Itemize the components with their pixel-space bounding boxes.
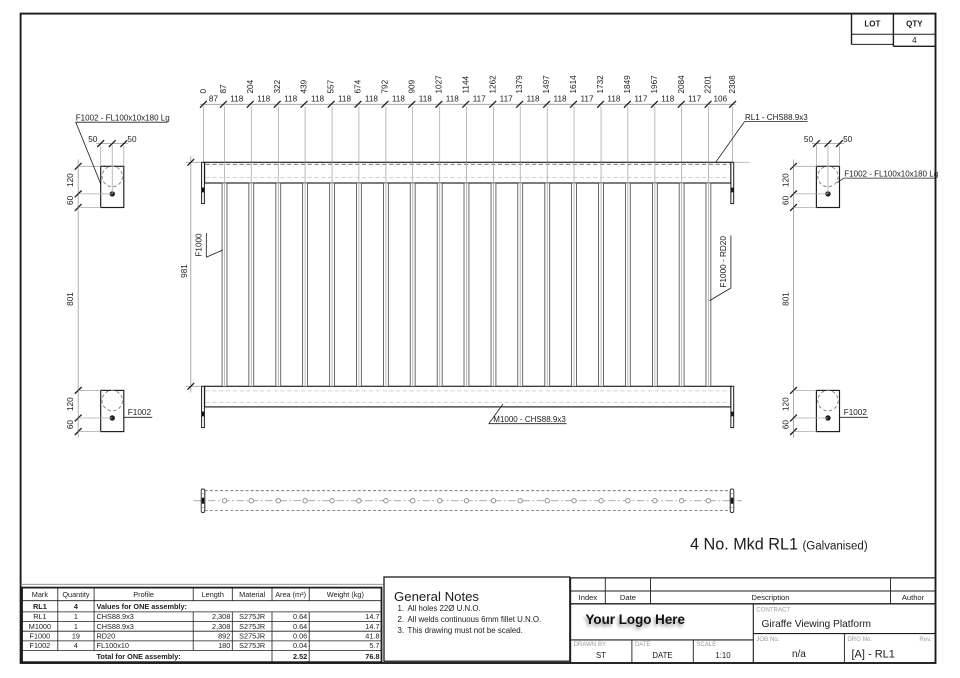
svg-text:Total for ONE assembly:: Total for ONE assembly: <box>97 652 181 661</box>
svg-text:50: 50 <box>804 135 814 144</box>
svg-text:50: 50 <box>88 135 98 144</box>
svg-text:118: 118 <box>338 95 351 104</box>
svg-text:DRAWN BY: DRAWN BY <box>574 641 607 648</box>
svg-text:[A] - RL1: [A] - RL1 <box>852 648 895 660</box>
svg-text:118: 118 <box>661 95 674 104</box>
svg-text:87: 87 <box>209 95 219 104</box>
svg-text:792: 792 <box>381 79 390 93</box>
svg-text:RL1: RL1 <box>33 612 46 621</box>
svg-text:5.7: 5.7 <box>369 641 379 650</box>
svg-text:106: 106 <box>713 95 727 104</box>
svg-text:180: 180 <box>218 641 230 650</box>
svg-text:F1002 - FL100x10x180 Lg: F1002 - FL100x10x180 Lg <box>76 113 170 122</box>
svg-text:2,308: 2,308 <box>212 622 230 631</box>
svg-text:CHS88.9x3: CHS88.9x3 <box>97 612 134 621</box>
svg-text:F1000 - RD20: F1000 - RD20 <box>719 236 728 288</box>
svg-text:1379: 1379 <box>515 75 524 94</box>
svg-text:Date: Date <box>620 593 636 602</box>
svg-text:S275JR: S275JR <box>239 641 265 650</box>
svg-text:204: 204 <box>246 79 255 93</box>
svg-text:0.64: 0.64 <box>293 612 307 621</box>
svg-text:118: 118 <box>527 95 540 104</box>
svg-text:1: 1 <box>74 622 78 631</box>
svg-text:909: 909 <box>407 79 416 93</box>
svg-text:M1000 - CHS88.9x3: M1000 - CHS88.9x3 <box>493 415 566 424</box>
svg-text:439: 439 <box>300 79 309 93</box>
svg-text:118: 118 <box>392 95 405 104</box>
svg-text:14.7: 14.7 <box>365 622 379 631</box>
svg-text:F1002: F1002 <box>844 408 868 417</box>
svg-text:3.: 3. <box>398 626 405 635</box>
svg-text:Mark: Mark <box>32 590 49 599</box>
svg-text:120: 120 <box>782 173 791 187</box>
svg-text:117: 117 <box>580 95 593 104</box>
svg-text:1849: 1849 <box>623 75 632 94</box>
svg-text:1497: 1497 <box>542 75 551 94</box>
svg-text:CONTRACT: CONTRACT <box>756 606 790 613</box>
svg-text:1027: 1027 <box>434 75 443 94</box>
svg-text:120: 120 <box>66 173 75 187</box>
svg-text:0.64: 0.64 <box>293 622 307 631</box>
svg-text:2084: 2084 <box>677 75 686 94</box>
svg-text:60: 60 <box>782 420 791 430</box>
svg-text:557: 557 <box>327 79 336 93</box>
svg-text:ST: ST <box>596 651 606 660</box>
svg-text:S275JR: S275JR <box>239 622 265 631</box>
svg-text:0.06: 0.06 <box>293 631 307 640</box>
svg-text:2.52: 2.52 <box>293 652 307 661</box>
svg-text:322: 322 <box>273 79 282 93</box>
svg-text:F1000: F1000 <box>195 233 204 257</box>
svg-text:F1002 - FL100x10x180 Lg: F1002 - FL100x10x180 Lg <box>844 169 938 178</box>
svg-text:RD20: RD20 <box>97 631 116 640</box>
svg-text:General Notes: General Notes <box>394 589 479 604</box>
svg-text:1:10: 1:10 <box>715 651 731 660</box>
svg-text:Weight (kg): Weight (kg) <box>327 590 364 599</box>
svg-text:n/a: n/a <box>792 649 806 660</box>
svg-text:50: 50 <box>843 135 853 144</box>
svg-text:118: 118 <box>230 95 243 104</box>
svg-text:1144: 1144 <box>461 75 470 93</box>
svg-text:F1000: F1000 <box>30 631 51 640</box>
svg-text:14.7: 14.7 <box>365 612 379 621</box>
svg-text:118: 118 <box>284 95 297 104</box>
svg-text:RL1: RL1 <box>33 602 47 611</box>
svg-text:117: 117 <box>688 95 701 104</box>
svg-text:117: 117 <box>634 95 647 104</box>
svg-text:2,308: 2,308 <box>212 612 230 621</box>
svg-text:Profile: Profile <box>133 590 154 599</box>
svg-text:892: 892 <box>218 631 230 640</box>
svg-text:4: 4 <box>912 36 917 45</box>
svg-text:19: 19 <box>72 631 80 640</box>
svg-text:2201: 2201 <box>704 75 713 94</box>
svg-text:60: 60 <box>66 420 75 430</box>
svg-text:118: 118 <box>554 95 567 104</box>
svg-text:FL100x10: FL100x10 <box>97 641 129 650</box>
svg-text:801: 801 <box>782 292 791 306</box>
svg-text:This drawing must not be scale: This drawing must not be scaled. <box>408 626 523 635</box>
svg-text:Description: Description <box>752 593 790 602</box>
svg-text:801: 801 <box>66 292 75 306</box>
svg-text:Area (m²): Area (m²) <box>275 590 306 599</box>
svg-text:118: 118 <box>607 95 620 104</box>
svg-text:1262: 1262 <box>488 75 497 94</box>
svg-text:M1000: M1000 <box>29 622 51 631</box>
svg-text:674: 674 <box>354 79 363 93</box>
svg-text:QTY: QTY <box>906 20 923 29</box>
svg-text:All holes 22Ø U.N.O.: All holes 22Ø U.N.O. <box>408 604 481 613</box>
svg-text:JOB No.: JOB No. <box>756 636 779 643</box>
svg-text:1614: 1614 <box>569 75 578 94</box>
svg-text:87: 87 <box>219 84 228 94</box>
svg-text:S275JR: S275JR <box>239 631 265 640</box>
svg-text:4: 4 <box>74 641 78 650</box>
svg-text:DATE: DATE <box>652 651 672 660</box>
svg-text:1: 1 <box>74 612 78 621</box>
svg-text:60: 60 <box>66 195 75 205</box>
svg-text:DRG No.: DRG No. <box>847 636 872 643</box>
svg-text:S275JR: S275JR <box>239 612 265 621</box>
svg-text:118: 118 <box>311 95 324 104</box>
svg-text:117: 117 <box>473 95 486 104</box>
svg-text:CHS88.9x3: CHS88.9x3 <box>97 622 134 631</box>
svg-text:F1002: F1002 <box>128 408 152 417</box>
svg-text:Index: Index <box>579 593 598 602</box>
svg-text:1967: 1967 <box>650 75 659 94</box>
svg-text:Values for ONE assembly:: Values for ONE assembly: <box>97 602 187 611</box>
svg-text:DATE: DATE <box>635 641 651 648</box>
svg-text:1732: 1732 <box>596 75 605 94</box>
svg-text:Material: Material <box>239 590 265 599</box>
svg-text:118: 118 <box>419 95 432 104</box>
svg-text:SCALE: SCALE <box>696 641 716 648</box>
svg-text:118: 118 <box>257 95 270 104</box>
svg-text:50: 50 <box>127 135 137 144</box>
svg-text:60: 60 <box>782 195 791 205</box>
svg-text:981: 981 <box>180 264 189 278</box>
svg-text:118: 118 <box>365 95 378 104</box>
svg-text:76.8: 76.8 <box>365 652 379 661</box>
svg-text:118: 118 <box>446 95 459 104</box>
svg-text:Giraffe Viewing Platform: Giraffe Viewing Platform <box>762 619 871 630</box>
svg-text:F1002: F1002 <box>30 641 51 650</box>
svg-text:All welds continuous 6mm fille: All welds continuous 6mm fillet U.N.O. <box>408 615 542 624</box>
svg-text:RL1 - CHS88.9x3: RL1 - CHS88.9x3 <box>745 113 808 122</box>
svg-text:Your Logo Here: Your Logo Here <box>586 612 685 627</box>
svg-text:Length: Length <box>202 590 224 599</box>
svg-text:41.8: 41.8 <box>365 631 379 640</box>
svg-text:1.: 1. <box>398 604 405 613</box>
svg-text:LOT: LOT <box>864 20 880 29</box>
svg-text:0.04: 0.04 <box>293 641 307 650</box>
svg-text:120: 120 <box>782 397 791 411</box>
svg-text:0: 0 <box>199 89 208 94</box>
svg-text:Rev.: Rev. <box>919 636 931 643</box>
svg-text:120: 120 <box>66 397 75 411</box>
svg-text:Quantity: Quantity <box>62 590 90 599</box>
svg-text:2.: 2. <box>398 615 405 624</box>
svg-text:Author: Author <box>902 593 925 602</box>
svg-text:2308: 2308 <box>728 75 737 94</box>
svg-text:117: 117 <box>500 95 513 104</box>
